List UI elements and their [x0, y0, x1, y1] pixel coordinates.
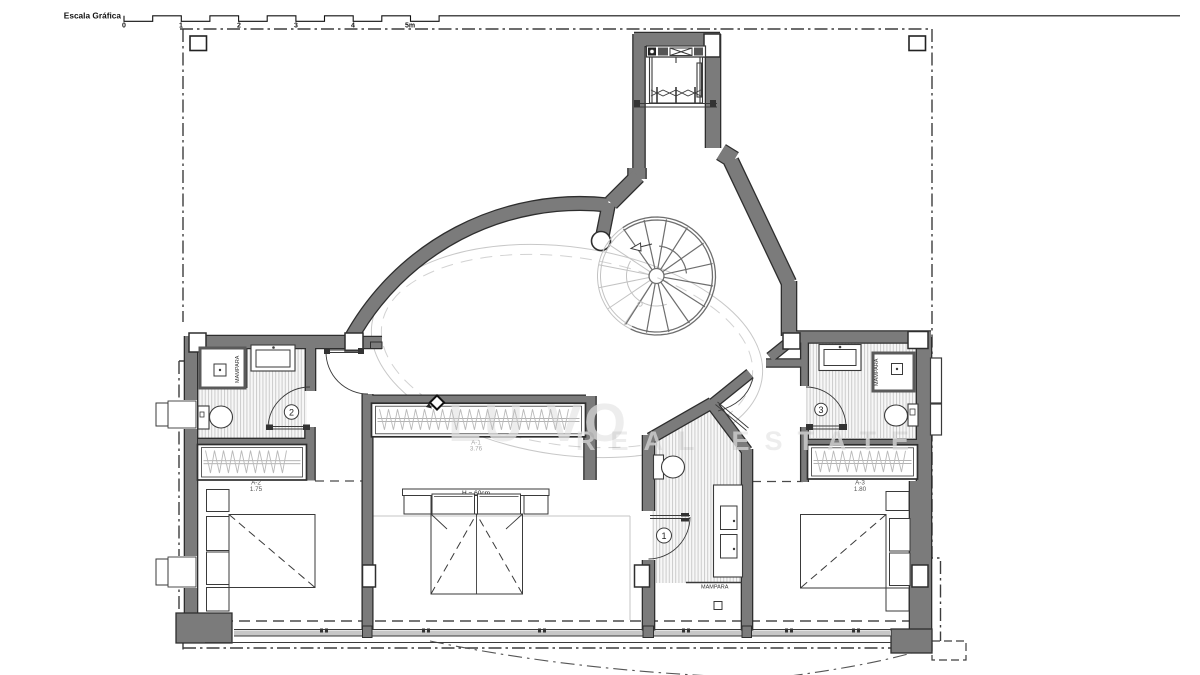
svg-text:MAMPARA: MAMPARA [874, 358, 880, 386]
svg-text:2: 2 [289, 407, 294, 417]
svg-text:LU: LU [448, 393, 526, 453]
svg-text:3: 3 [294, 23, 298, 30]
svg-text:REAL ESTATE: REAL ESTATE [576, 426, 924, 456]
svg-text:0: 0 [122, 23, 126, 30]
svg-text:1.80: 1.80 [854, 486, 867, 493]
svg-text:1.75: 1.75 [250, 486, 263, 493]
svg-text:3: 3 [818, 405, 823, 415]
svg-text:1: 1 [661, 531, 666, 541]
svg-text:Escala Gráfica: Escala Gráfica [64, 11, 122, 21]
svg-text:MAMPARA: MAMPARA [235, 355, 241, 383]
svg-text:MAMPARA: MAMPARA [701, 585, 729, 591]
